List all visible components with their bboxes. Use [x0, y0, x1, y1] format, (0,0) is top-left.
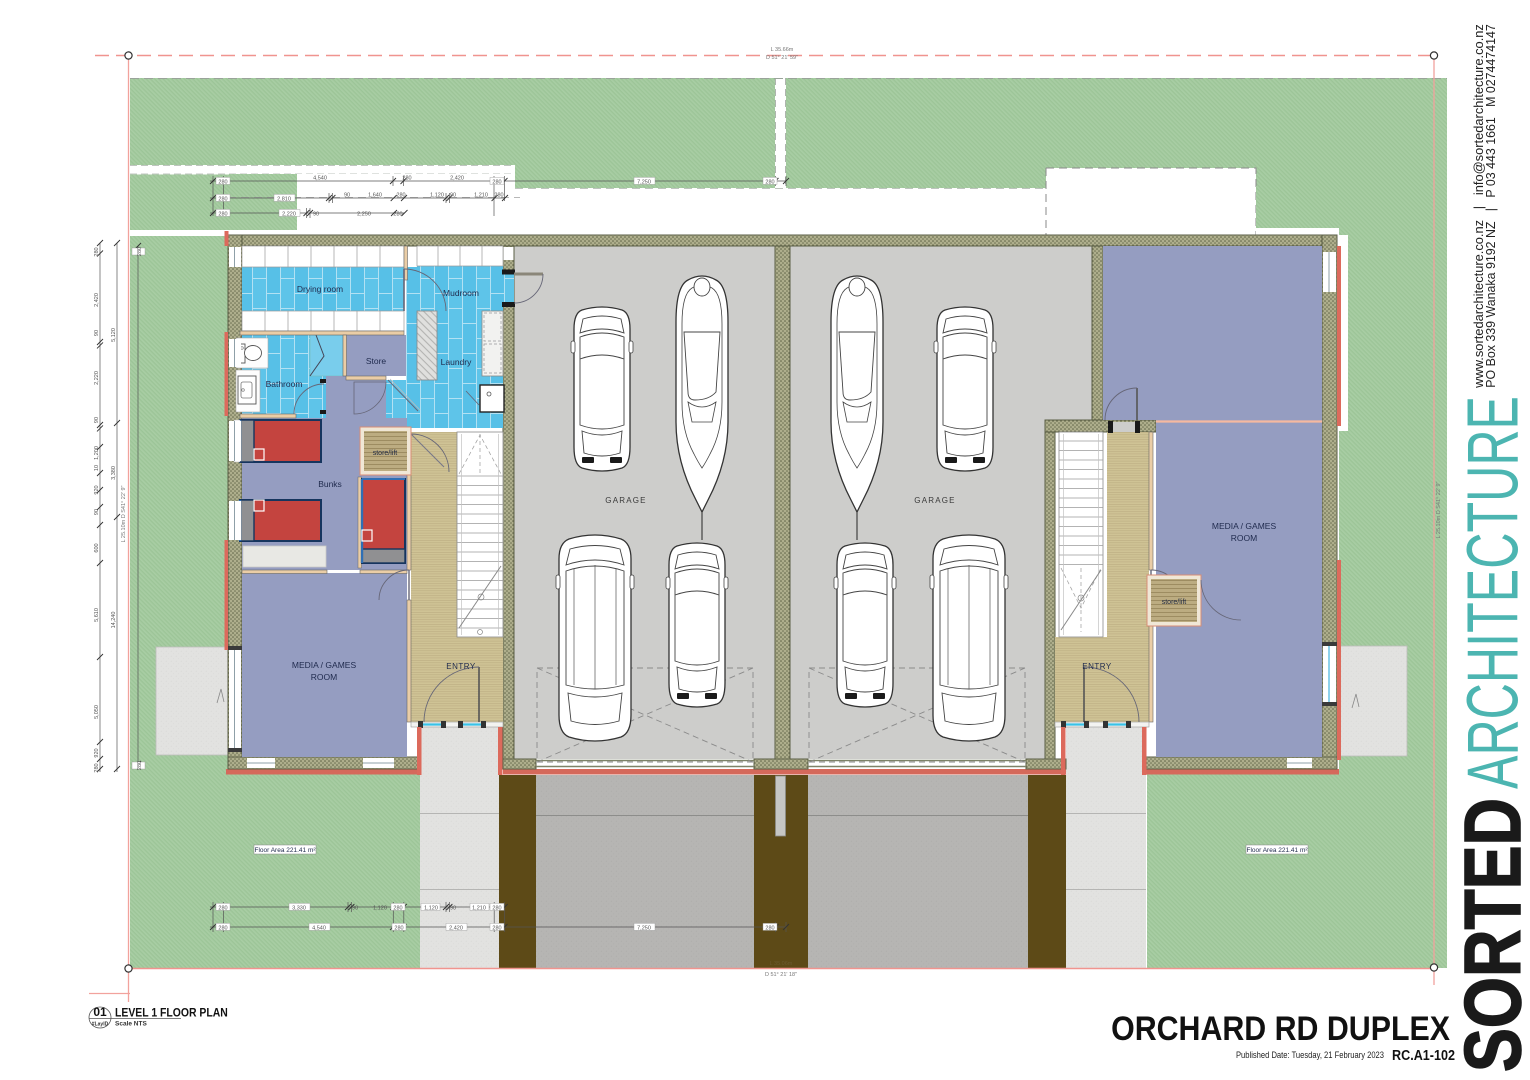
svg-text:Bathroom: Bathroom [266, 379, 303, 389]
svg-text:ENTRY: ENTRY [446, 662, 476, 671]
svg-text:14,240: 14,240 [111, 612, 117, 629]
svg-text:MEDIA / GAMES: MEDIA / GAMES [292, 660, 357, 670]
svg-text:280: 280 [494, 192, 503, 198]
svg-text:90: 90 [450, 905, 456, 911]
svg-text:RC.A1-102: RC.A1-102 [1392, 1046, 1455, 1063]
svg-text:280: 280 [396, 192, 405, 198]
svg-text:4,540: 4,540 [313, 175, 327, 181]
svg-text:1,210: 1,210 [474, 192, 488, 198]
svg-text:GARAGE: GARAGE [605, 496, 646, 505]
svg-text:280: 280 [137, 247, 143, 256]
svg-text:1,200: 1,200 [94, 446, 100, 460]
svg-text:90: 90 [450, 192, 456, 198]
svg-text:280: 280 [218, 211, 227, 217]
svg-text:1,120: 1,120 [430, 192, 444, 198]
svg-text:280: 280 [137, 761, 143, 770]
svg-text:ORCHARD RD DUPLEX: ORCHARD RD DUPLEX [1111, 1009, 1450, 1047]
svg-text:Bunks: Bunks [318, 479, 342, 489]
svg-text:PO Box 339 Wanaka 9192 NZ |: PO Box 339 Wanaka 9192 NZ | P 03 443 166… [1484, 24, 1498, 388]
svg-text:ENTRY: ENTRY [1082, 662, 1112, 671]
svg-text:90: 90 [94, 330, 100, 336]
svg-text:280: 280 [393, 905, 402, 911]
svg-text:1,210: 1,210 [472, 905, 486, 911]
svg-text:Drying room: Drying room [297, 284, 343, 294]
svg-text:store/lift: store/lift [1162, 599, 1187, 606]
svg-text:2,420: 2,420 [449, 925, 463, 931]
svg-text:280: 280 [492, 925, 501, 931]
svg-text:280: 280 [94, 247, 100, 256]
svg-text:MEDIA / GAMES: MEDIA / GAMES [1212, 521, 1277, 531]
svg-text:D 51° 21' 18": D 51° 21' 18" [765, 972, 797, 978]
svg-text:1,120: 1,120 [373, 905, 387, 911]
svg-text:280: 280 [218, 196, 227, 202]
svg-text:920: 920 [94, 748, 100, 757]
svg-text:280: 280 [402, 175, 411, 181]
svg-text:L 35.66m: L 35.66m [771, 47, 794, 53]
svg-text:5,050: 5,050 [94, 705, 100, 719]
svg-text:D 51° 21' 59": D 51° 21' 59" [766, 55, 798, 61]
svg-text:SORTED: SORTED [1448, 798, 1530, 1072]
svg-text:ROOM: ROOM [311, 672, 337, 682]
svg-text:5,120: 5,120 [111, 328, 117, 342]
svg-text:2,250: 2,250 [357, 211, 371, 217]
svg-text:3,380: 3,380 [111, 466, 117, 480]
svg-text:2,420: 2,420 [94, 293, 100, 307]
svg-text:280: 280 [765, 925, 774, 931]
svg-text:1,120: 1,120 [424, 905, 438, 911]
svg-text:store/lift: store/lift [373, 450, 398, 457]
svg-text:10: 10 [94, 465, 100, 471]
svg-text:LEVEL 1 FLOOR PLAN: LEVEL 1 FLOOR PLAN [115, 1007, 228, 1020]
svg-text:90: 90 [94, 417, 100, 423]
svg-text:280: 280 [218, 925, 227, 931]
svg-text:5,610: 5,610 [94, 608, 100, 622]
svg-text:Laundry: Laundry [441, 357, 472, 367]
svg-text:280: 280 [94, 763, 100, 772]
svg-text:90: 90 [344, 192, 350, 198]
svg-text:280: 280 [492, 905, 501, 911]
svg-text:GARAGE: GARAGE [914, 496, 955, 505]
svg-text:2,420: 2,420 [450, 175, 464, 181]
svg-text:2,220: 2,220 [282, 211, 296, 217]
svg-text:L 35.06m: L 35.06m [770, 961, 793, 967]
svg-text:Mudroom: Mudroom [443, 288, 479, 298]
svg-text:3,330: 3,330 [292, 905, 306, 911]
svg-text:90: 90 [94, 509, 100, 515]
svg-text:7,250: 7,250 [637, 925, 651, 931]
svg-text:2,810: 2,810 [277, 196, 291, 202]
svg-text:280: 280 [765, 179, 774, 185]
svg-text:#LayID: #LayID [92, 1022, 109, 1028]
svg-text:7,250: 7,250 [637, 179, 651, 185]
svg-text:2,220: 2,220 [94, 371, 100, 385]
svg-text:Store: Store [366, 356, 387, 366]
svg-text:280: 280 [218, 179, 227, 185]
svg-text:600: 600 [94, 543, 100, 552]
svg-text:280: 280 [393, 211, 402, 217]
svg-text:1,640: 1,640 [368, 192, 382, 198]
svg-text:Published Date: Tuesday, 21 Fe: Published Date: Tuesday, 21 February 202… [1236, 1049, 1384, 1060]
svg-text:L 25.10m D S41° 22' 9": L 25.10m D S41° 22' 9" [1436, 481, 1442, 538]
svg-text:920: 920 [94, 485, 100, 494]
svg-text:ARCHITECTURE: ARCHITECTURE [1454, 396, 1530, 789]
svg-text:280: 280 [218, 905, 227, 911]
svg-text:280: 280 [394, 925, 403, 931]
svg-text:ROOM: ROOM [1231, 533, 1257, 543]
svg-text:01: 01 [93, 1005, 107, 1019]
svg-text:280: 280 [492, 179, 501, 185]
svg-text:Floor Area 221.41 m²: Floor Area 221.41 m² [1246, 847, 1308, 854]
svg-text:4,540: 4,540 [312, 925, 326, 931]
svg-text:Floor Area 221.41 m²: Floor Area 221.41 m² [254, 847, 316, 854]
svg-text:L 25.10m D S41° 22' 9": L 25.10m D S41° 22' 9" [121, 485, 127, 542]
svg-text:Scale NTS: Scale NTS [115, 1021, 147, 1028]
svg-text:90: 90 [313, 211, 319, 217]
svg-text:90: 90 [352, 905, 358, 911]
